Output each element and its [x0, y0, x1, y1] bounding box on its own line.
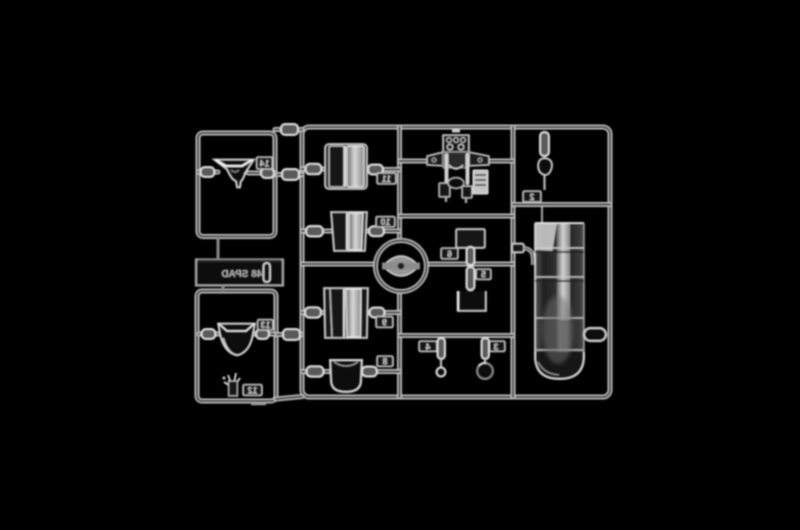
- svg-text:12: 12: [247, 386, 257, 396]
- svg-text:6: 6: [447, 249, 452, 259]
- svg-text:4: 4: [425, 342, 430, 352]
- svg-text:2: 2: [529, 192, 534, 202]
- svg-text:3: 3: [493, 342, 498, 352]
- svg-text:5: 5: [481, 270, 486, 280]
- svg-text:11: 11: [382, 174, 392, 184]
- svg-text:10: 10: [380, 217, 390, 227]
- svg-text:13: 13: [260, 320, 270, 330]
- svg-text:8: 8: [382, 357, 387, 367]
- svg-text:14: 14: [259, 159, 269, 169]
- svg-text:9: 9: [382, 318, 387, 328]
